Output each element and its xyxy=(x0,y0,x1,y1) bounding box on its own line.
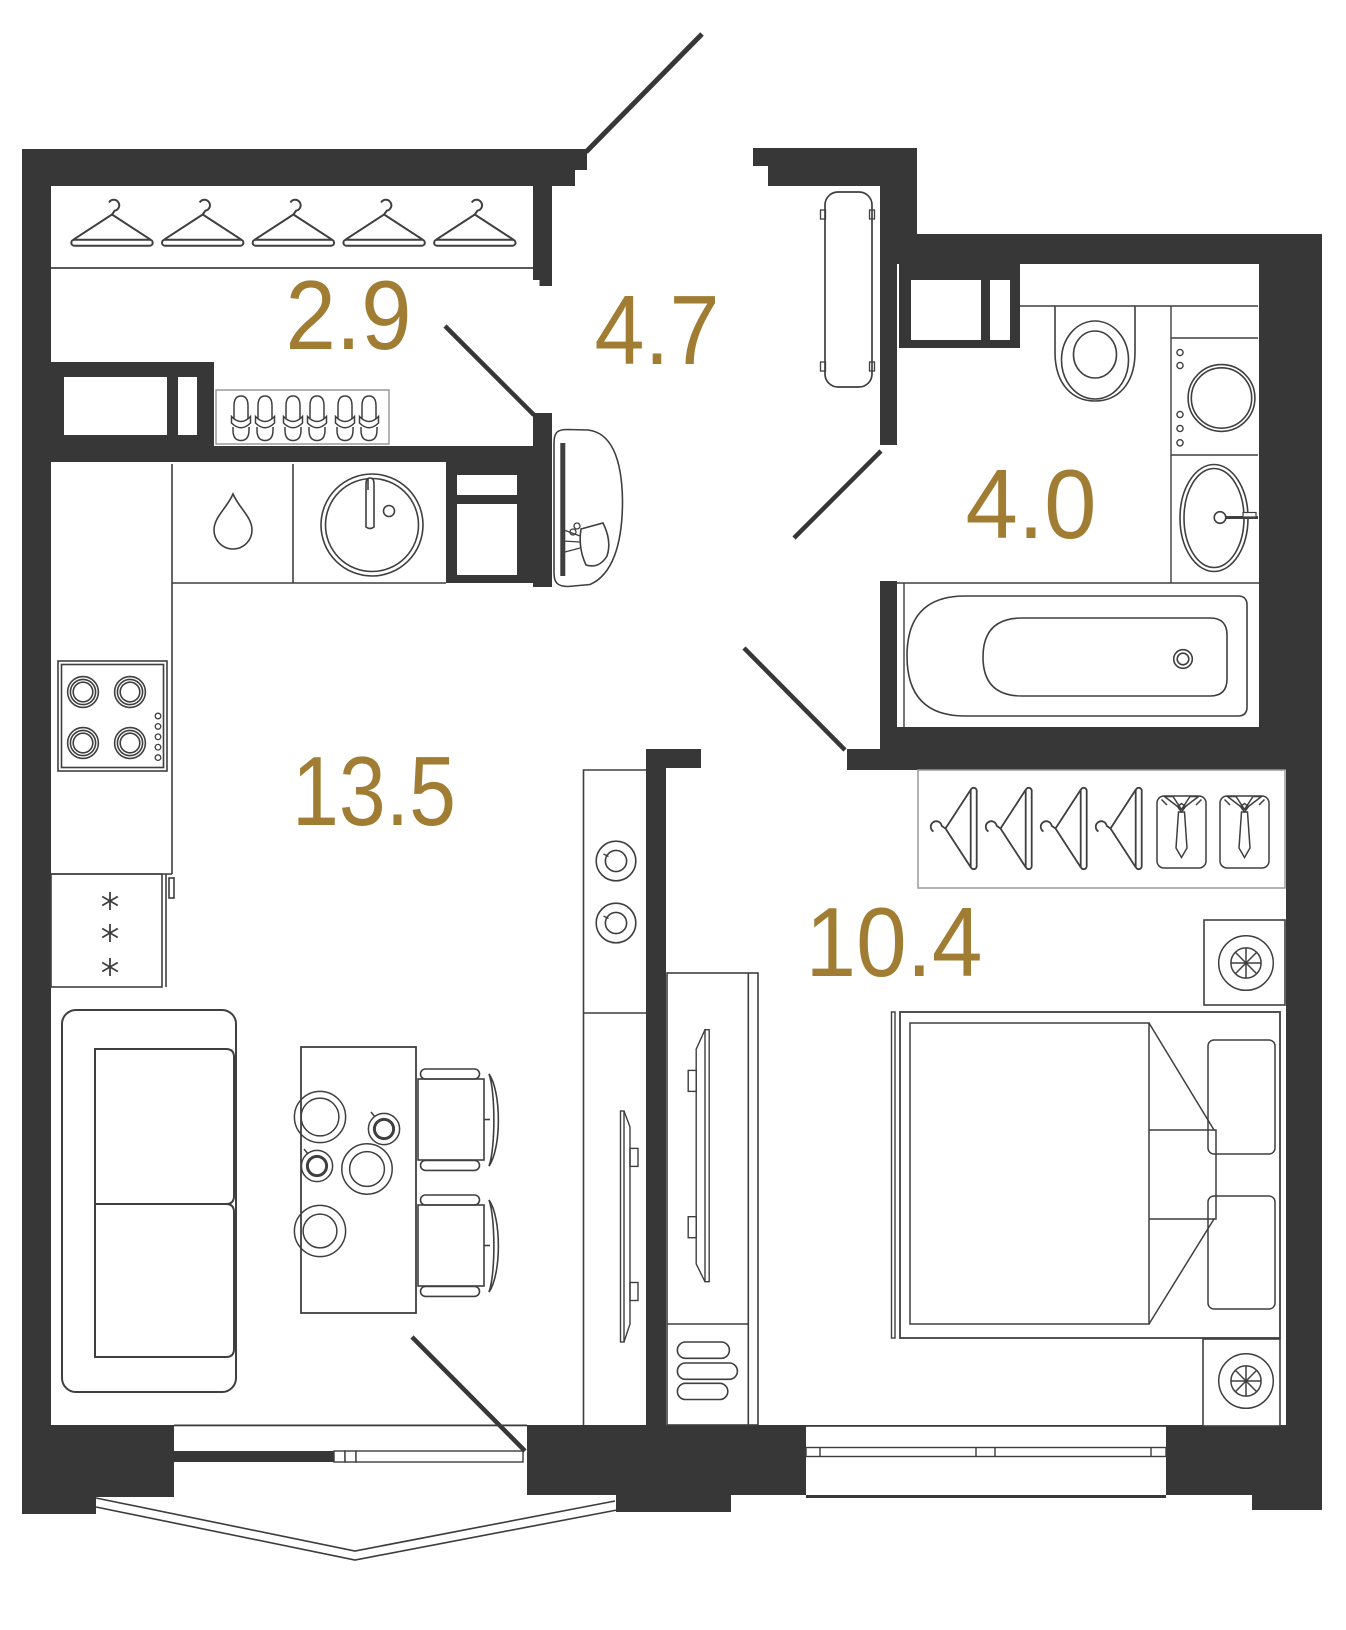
svg-text:10.4: 10.4 xyxy=(806,887,983,997)
svg-text:4.7: 4.7 xyxy=(595,275,720,385)
svg-text:4.0: 4.0 xyxy=(966,449,1097,559)
svg-text:2.9: 2.9 xyxy=(286,260,412,370)
svg-text:13.5: 13.5 xyxy=(292,736,456,846)
